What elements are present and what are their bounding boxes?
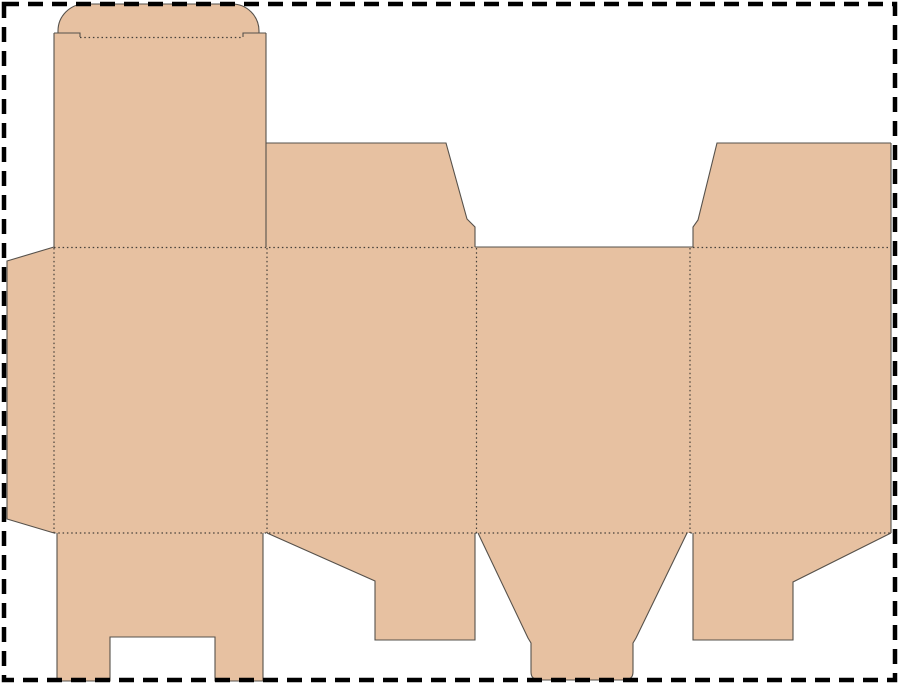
- dust-flap-top-left: [266, 143, 475, 248]
- dieline-svg: [0, 0, 900, 685]
- dieline-canvas: [0, 0, 900, 685]
- tuck-flap: [58, 4, 259, 34]
- main-panel-band: [54, 247, 891, 533]
- lid-panel: [54, 33, 266, 248]
- dust-flap-top-right: [693, 143, 891, 248]
- glue-flap: [7, 247, 54, 533]
